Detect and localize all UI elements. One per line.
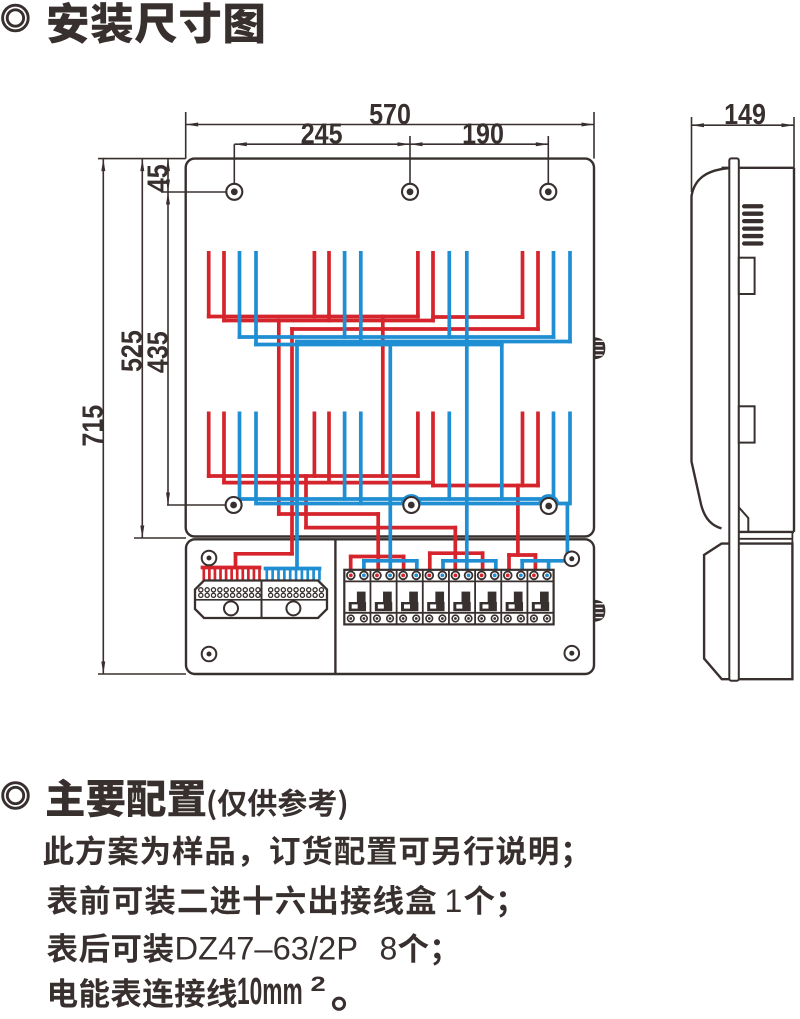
- svg-text:2: 2: [311, 973, 326, 996]
- svg-text:10mm: 10mm: [237, 970, 303, 1012]
- svg-text:DZ47–63/2P: DZ47–63/2P: [175, 929, 359, 966]
- svg-text:149: 149: [724, 99, 766, 131]
- svg-text:1: 1: [445, 883, 463, 919]
- svg-text:435: 435: [142, 331, 174, 373]
- svg-text:245: 245: [301, 118, 343, 150]
- svg-text:715: 715: [77, 405, 109, 447]
- svg-text:8: 8: [380, 931, 398, 967]
- svg-text:570: 570: [369, 99, 411, 131]
- svg-text:45: 45: [142, 164, 174, 192]
- svg-text:190: 190: [462, 118, 504, 150]
